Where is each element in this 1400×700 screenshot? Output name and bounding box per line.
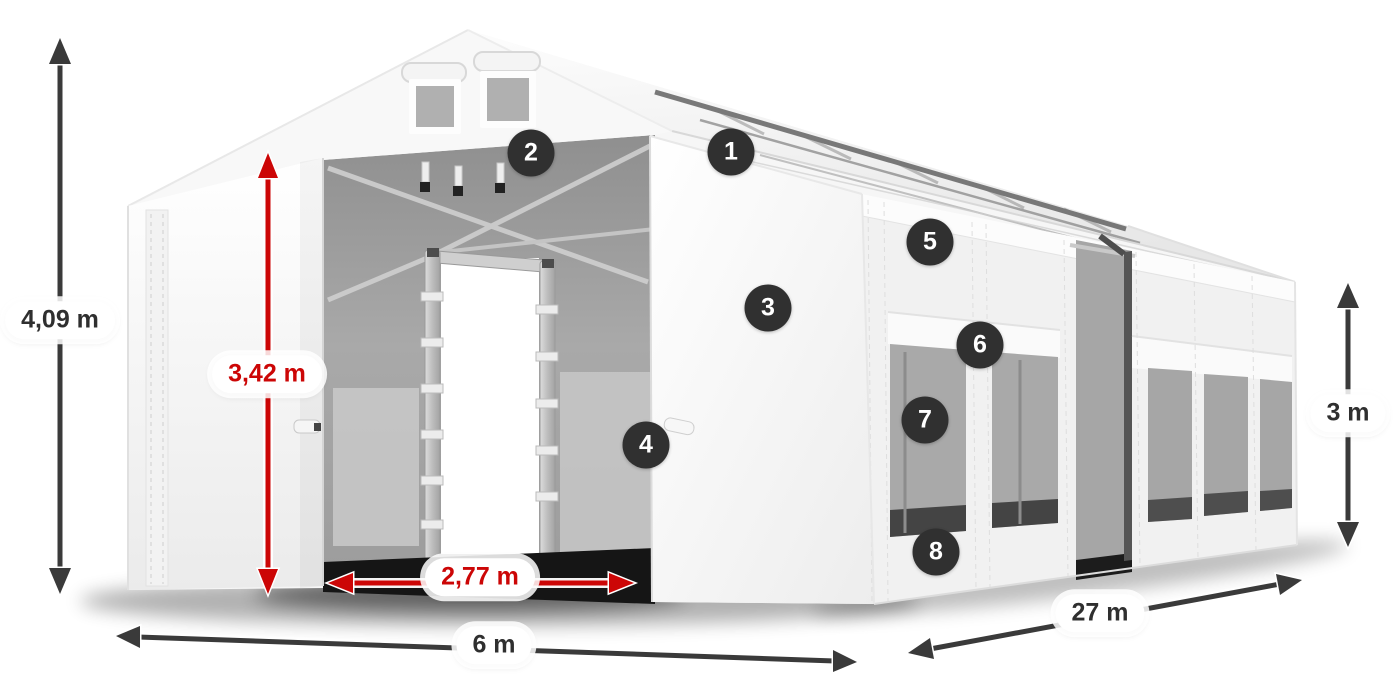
roof-window-left [402,63,466,134]
inner-door-open-gap [441,258,539,554]
dimension-label-length: 27 m [1056,594,1145,632]
dimension-label-entrance-width: 2,77 m [425,558,535,596]
tent-illustration [0,0,1400,700]
side-window-e [1260,379,1292,511]
front-right-panel [650,136,874,604]
dimension-label-entrance-height: 3,42 m [212,355,322,393]
callout-badge-3[interactable]: 3 [745,285,792,332]
callout-badge-8[interactable]: 8 [913,529,960,576]
front-opening-interior [323,135,655,604]
dimension-label-total-height: 4,09 m [5,301,115,339]
dimension-label-front-width: 6 m [456,626,531,664]
side-window-c [1148,368,1192,522]
dimension-label-side-height: 3 m [1310,394,1385,432]
callout-badge-7[interactable]: 7 [902,397,949,444]
callout-badge-4[interactable]: 4 [623,422,670,469]
side-window-d [1204,374,1248,516]
callout-badge-2[interactable]: 2 [508,130,555,177]
side-open-section [1070,236,1135,580]
callout-badge-5[interactable]: 5 [907,219,954,266]
callout-badge-6[interactable]: 6 [957,322,1004,369]
door-handle-left [294,420,321,433]
side-window-b [992,352,1058,528]
tent-diagram-stage: 4,09 m 3,42 m 2,77 m 6 m 27 m 3 m 123456… [0,0,1400,700]
callout-badge-1[interactable]: 1 [708,129,755,176]
roof-window-right [474,52,540,128]
